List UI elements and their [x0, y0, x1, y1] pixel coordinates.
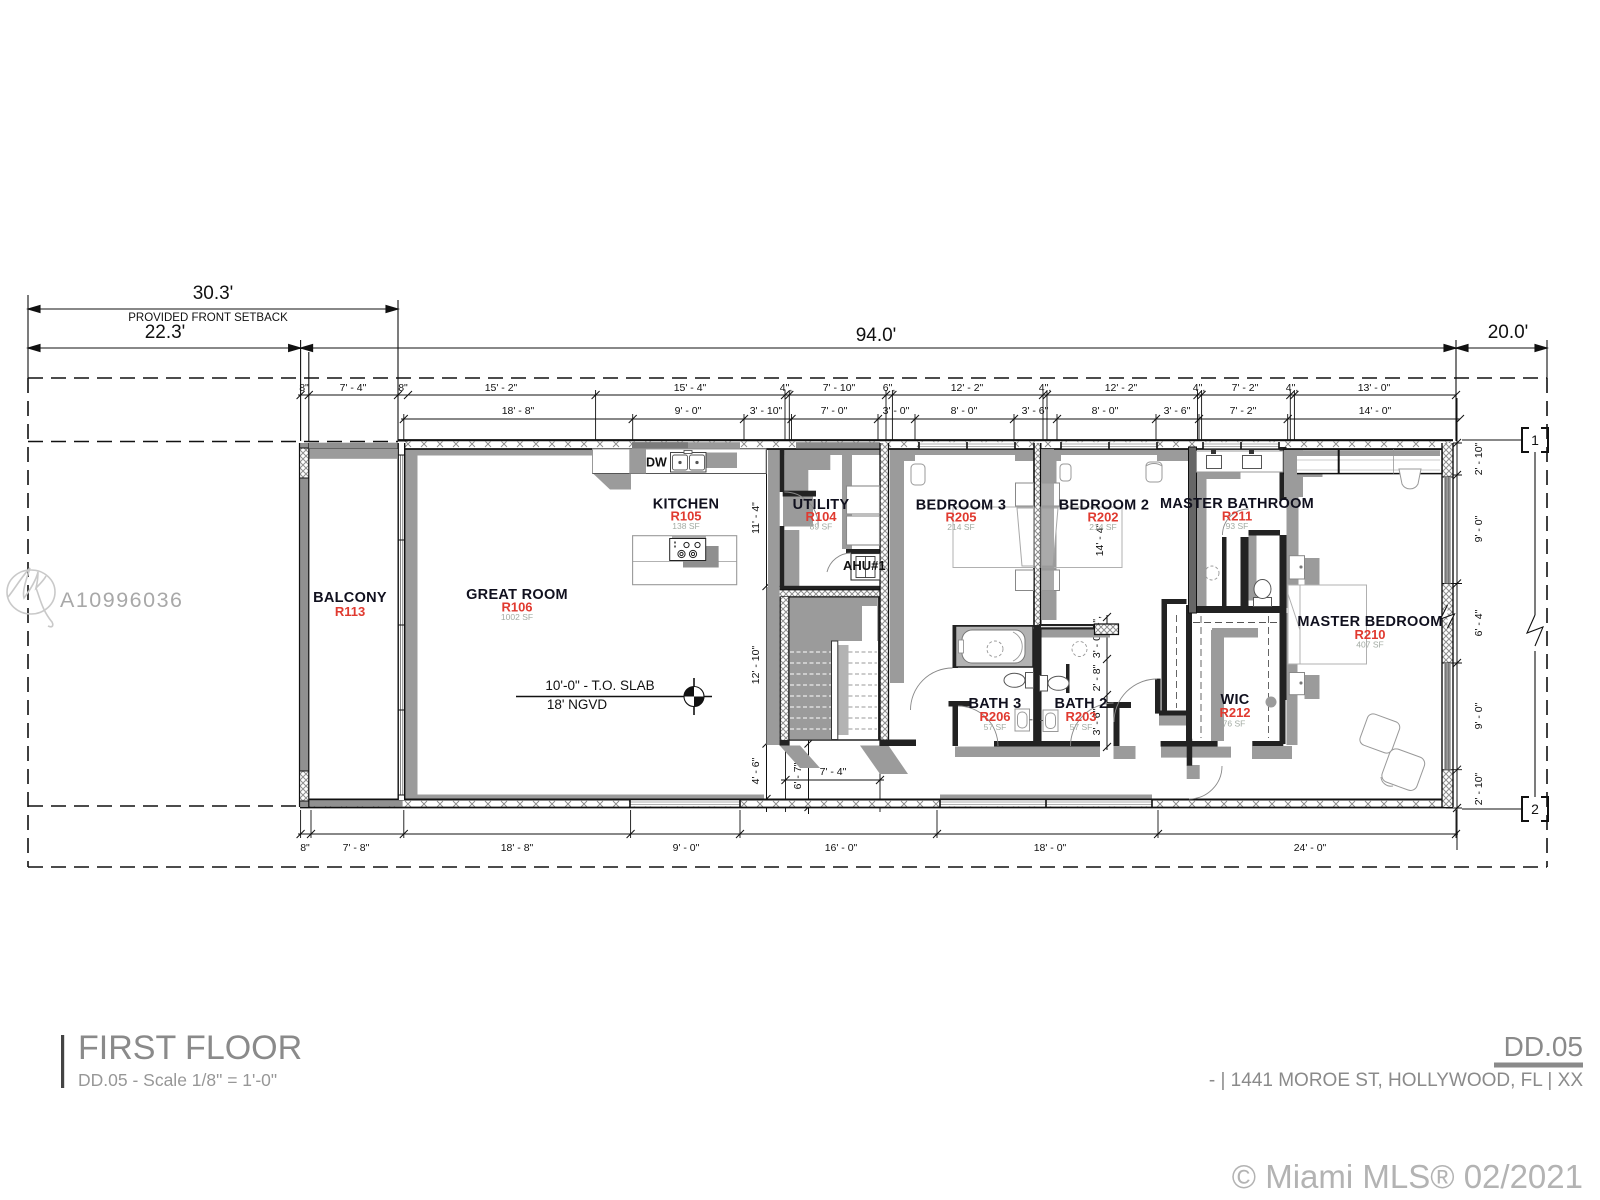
svg-text:2' - 8": 2' - 8" [1091, 664, 1103, 691]
svg-text:7' - 8": 7' - 8" [343, 842, 370, 854]
svg-text:- | 1441 MOROE ST, HOLLYWOOD,: - | 1441 MOROE ST, HOLLYWOOD, FL | XX [1209, 1070, 1583, 1091]
svg-text:18' - 8": 18' - 8" [501, 842, 534, 854]
svg-text:18' NGVD: 18' NGVD [547, 697, 608, 712]
svg-text:14' - 0": 14' - 0" [1359, 405, 1392, 417]
svg-text:DD.05: DD.05 [1504, 1031, 1583, 1062]
svg-text:8' - 0": 8' - 0" [951, 405, 978, 417]
svg-text:8": 8" [300, 842, 310, 854]
svg-text:138 SF: 138 SF [672, 521, 699, 531]
svg-text:12' - 10": 12' - 10" [750, 646, 762, 685]
svg-text:R113: R113 [335, 604, 365, 619]
svg-text:A10996036: A10996036 [60, 588, 184, 612]
svg-text:89 SF: 89 SF [810, 522, 833, 532]
svg-text:214 SF: 214 SF [1089, 522, 1116, 532]
svg-text:93 SF: 93 SF [1226, 521, 1249, 531]
svg-text:7' - 4": 7' - 4" [340, 382, 367, 394]
svg-text:4",: 4", [780, 382, 792, 394]
svg-text:3' - 0": 3' - 0" [883, 405, 910, 417]
svg-text:407 SF: 407 SF [1356, 640, 1383, 650]
svg-text:16' - 0": 16' - 0" [825, 842, 858, 854]
svg-text:8' - 0": 8' - 0" [1092, 405, 1119, 417]
svg-text:214 SF: 214 SF [947, 522, 974, 532]
svg-text:20.0': 20.0' [1488, 322, 1529, 343]
svg-text:24' - 0": 24' - 0" [1294, 842, 1327, 854]
svg-text:8": 8" [299, 382, 309, 394]
svg-text:2' - 10": 2' - 10" [1473, 442, 1485, 475]
svg-text:10'-0" - T.O. SLAB: 10'-0" - T.O. SLAB [545, 678, 654, 693]
svg-text:15' - 4": 15' - 4" [674, 382, 707, 394]
svg-text:13' - 0": 13' - 0" [1358, 382, 1391, 394]
svg-text:57 SF: 57 SF [1070, 722, 1093, 732]
svg-text:3' - 10": 3' - 10" [750, 405, 783, 417]
svg-text:3' - 6": 3' - 6" [1164, 405, 1191, 417]
svg-text:4' - 6": 4' - 6" [750, 757, 762, 784]
svg-text:7' - 0": 7' - 0" [821, 405, 848, 417]
svg-text:7' - 4": 7' - 4" [820, 766, 847, 778]
svg-text:7' - 10": 7' - 10" [823, 382, 856, 394]
svg-text:11' - 4": 11' - 4" [750, 502, 762, 534]
svg-text:DW: DW [646, 456, 667, 470]
svg-text:7' - 2": 7' - 2" [1230, 405, 1257, 417]
svg-text:9' - 0": 9' - 0" [675, 405, 702, 417]
svg-text:94.0': 94.0' [856, 325, 897, 346]
svg-text:1: 1 [1531, 432, 1539, 448]
svg-text:2: 2 [1531, 801, 1539, 817]
svg-text:4",: 4", [1039, 382, 1051, 394]
svg-text:76 SF: 76 SF [1223, 719, 1246, 729]
svg-text:9' - 0": 9' - 0" [673, 842, 700, 854]
svg-text:4",: 4", [1286, 382, 1298, 394]
svg-text:7' - 2": 7' - 2" [1232, 382, 1259, 394]
svg-text:FIRST FLOOR: FIRST FLOOR [78, 1029, 302, 1067]
svg-text:DD.05 - Scale 1/8" = 1'-0": DD.05 - Scale 1/8" = 1'-0" [78, 1070, 277, 1090]
svg-text:6",: 6", [883, 382, 895, 394]
svg-text:AHU#1: AHU#1 [843, 558, 886, 573]
svg-text:22.3': 22.3' [145, 322, 186, 343]
svg-text:57 SF: 57 SF [984, 722, 1007, 732]
svg-text:2' - 10": 2' - 10" [1473, 772, 1485, 805]
svg-text:9' - 0": 9' - 0" [1473, 702, 1485, 729]
svg-text:8": 8" [398, 382, 408, 394]
svg-text:© Miami MLS® 02/2021: © Miami MLS® 02/2021 [1232, 1158, 1583, 1195]
svg-text:12' - 2": 12' - 2" [951, 382, 984, 394]
svg-text:15' - 2": 15' - 2" [485, 382, 518, 394]
svg-text:3' - 6": 3' - 6" [1022, 405, 1049, 417]
svg-text:18' - 0": 18' - 0" [1034, 842, 1067, 854]
svg-text:18' - 8": 18' - 8" [502, 405, 535, 417]
svg-text:9' - 0": 9' - 0" [1473, 515, 1485, 542]
svg-text:6' - 4": 6' - 4" [1473, 609, 1485, 636]
svg-text:30.3': 30.3' [193, 283, 234, 304]
svg-text:12' - 2": 12' - 2" [1105, 382, 1138, 394]
svg-text:1002 SF: 1002 SF [501, 612, 533, 622]
svg-text:4",: 4", [1193, 382, 1205, 394]
